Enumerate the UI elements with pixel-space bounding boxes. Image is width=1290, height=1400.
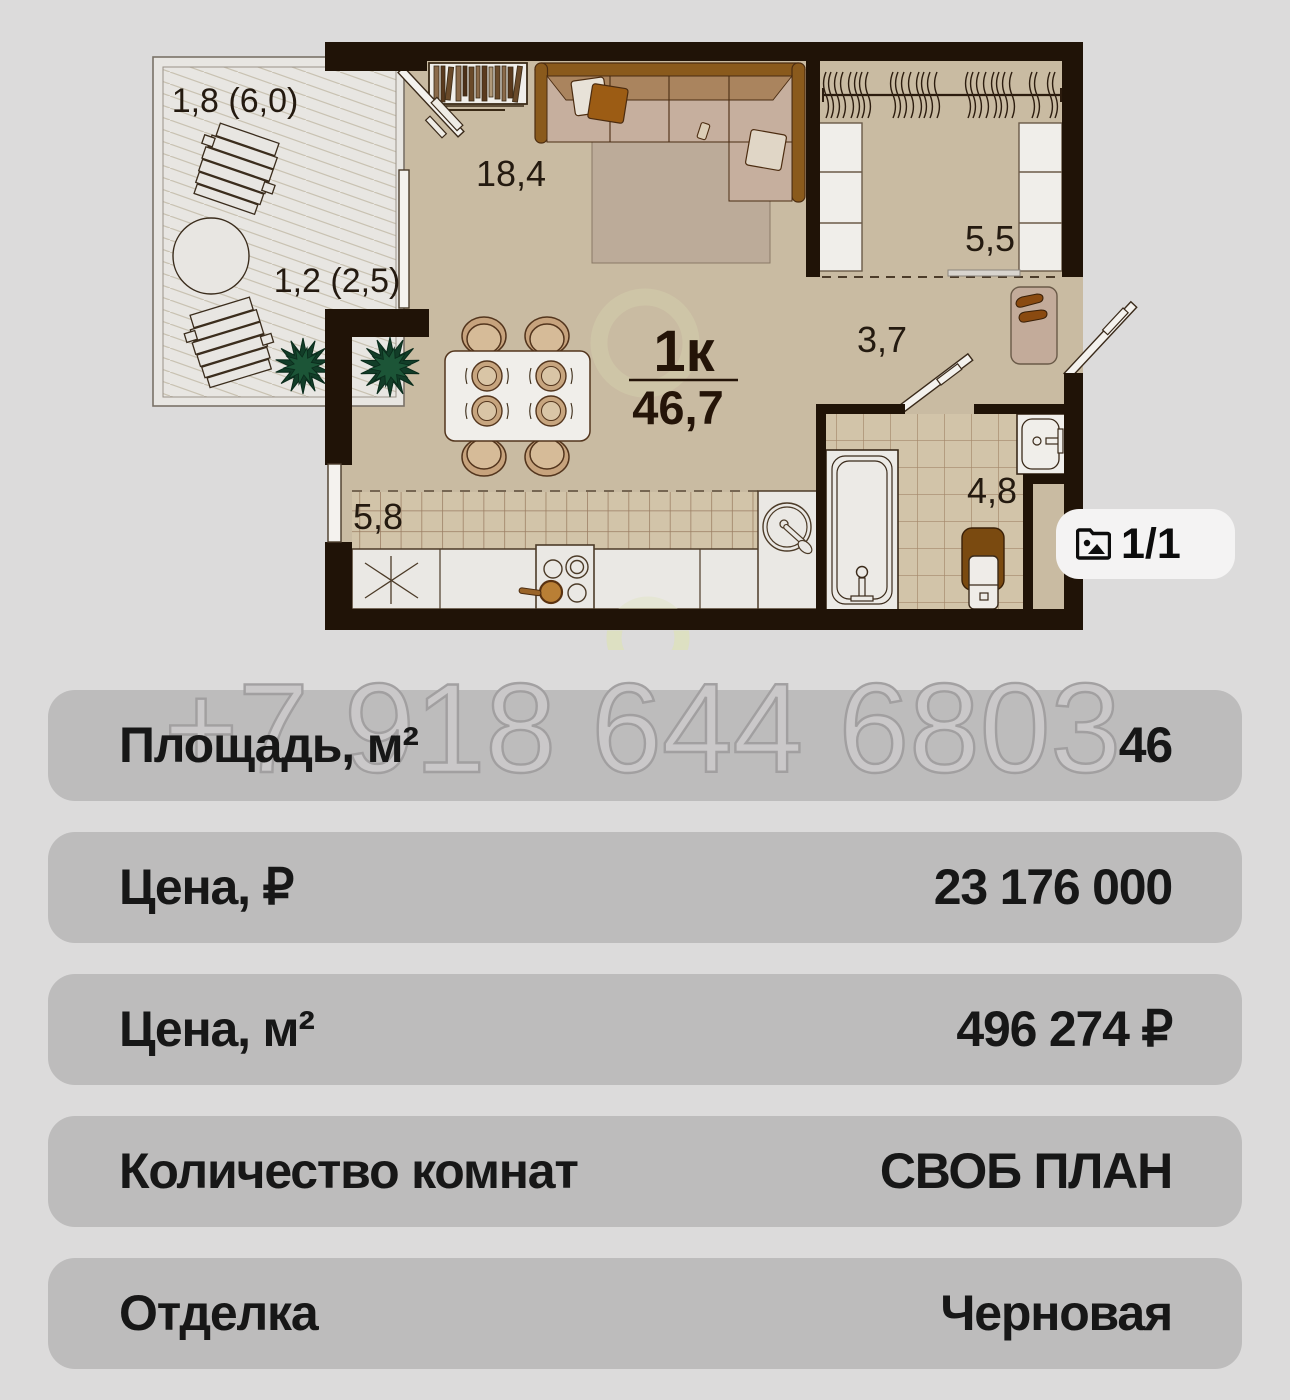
svg-text:46,7: 46,7 [632, 381, 723, 434]
svg-text:3,7: 3,7 [857, 319, 907, 360]
svg-text:5,8: 5,8 [353, 496, 403, 537]
svg-text:1,8 (6,0): 1,8 (6,0) [172, 82, 299, 120]
svg-text:1,2 (2,5): 1,2 (2,5) [274, 262, 401, 300]
svg-text:5,5: 5,5 [965, 218, 1015, 259]
svg-text:1к: 1к [653, 319, 715, 384]
svg-text:4,8: 4,8 [967, 470, 1017, 511]
svg-text:18,4: 18,4 [476, 153, 546, 194]
